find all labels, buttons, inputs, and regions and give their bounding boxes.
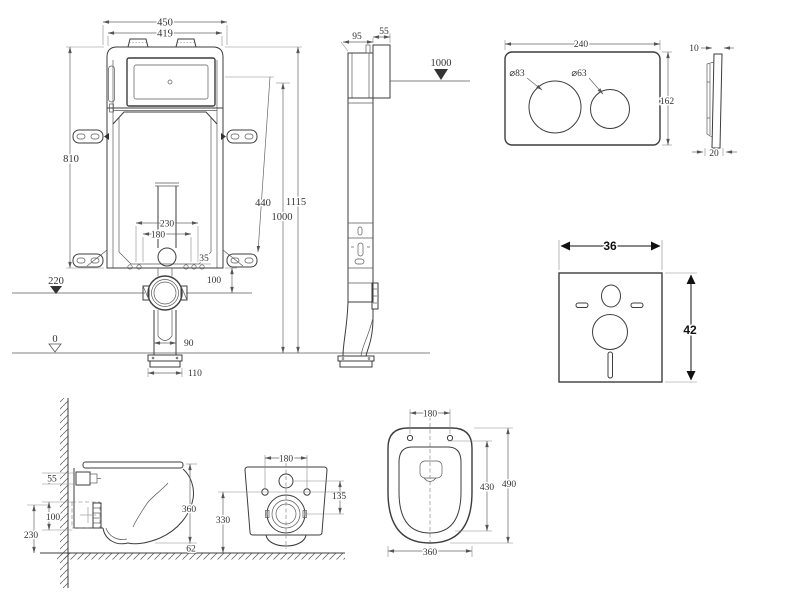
sound-insulation-mat: 36 42 [559,239,697,382]
dim-bolt-spacing-230: 230 [160,220,175,230]
dim-pipe-90: 90 [184,339,194,349]
technical-drawing: 450 419 810 440 1115 1000 230 180 35 100 [0,0,800,600]
dim-frame-overall-width: 450 [157,18,173,29]
outlet-ring-outer [267,495,305,533]
dim-frame-height: 810 [63,154,79,165]
dim-depth-95: 95 [352,32,362,42]
level-220: 220 [48,276,64,287]
bowl-back-view: 180 135 330 [216,455,347,554]
bowl-top-view: 180 430 490 360 [388,409,516,558]
dim-bolt-spacing-180: 180 [151,231,166,241]
bowl-side-view: 55 100 230 360 62 [24,462,197,555]
dim-frame-width: 419 [157,29,173,40]
seat-hole-left [407,435,412,440]
mat-slot-right [631,303,643,308]
dim-dia-large: ⌀83 [509,69,524,79]
level-1000: 1000 [431,58,452,69]
wall-section-hatch [373,45,390,98]
mat-drain-hole [593,315,628,350]
dim-dia-small: ⌀63 [571,69,586,79]
mat-bottom-slot [608,352,613,378]
dim-back-135: 135 [332,492,347,502]
dim-top-360: 360 [423,548,438,558]
floor-hatch [57,554,345,560]
frame-side-view: 95 55 1000 [338,27,470,367]
mat-top-hole [602,285,621,307]
flush-button-small [591,90,630,129]
wall-bracket-upper-left [73,130,109,143]
dim-top-490: 490 [502,480,517,490]
dim-plate-height: 162 [660,97,675,107]
seat-hole-right [447,435,452,440]
dim-100: 100 [207,276,222,286]
flush-plate-side-view: 10 20 [689,44,737,159]
flush-opening [420,461,442,478]
dim-440: 440 [255,198,271,209]
wall-bracket-upper-right [221,130,257,143]
dim-bowl-230: 230 [24,531,39,541]
dim-top-430: 430 [480,483,495,493]
dim-depth-55: 55 [379,27,389,37]
dim-1000: 1000 [272,212,293,223]
dim-bowl-55: 55 [47,475,57,485]
dim-bowl-62: 62 [186,545,196,555]
drain-outlet [143,268,187,367]
frame-front-view: 450 419 810 440 1115 1000 230 180 35 100 [12,18,430,380]
wall-and-floor [40,398,345,588]
dim-1115: 1115 [286,197,306,208]
dim-plate-thickness-bottom: 20 [709,149,719,159]
dim-35: 35 [199,254,209,264]
flush-plate-front-view: 240 162 ⌀83 ⌀63 [505,40,674,145]
flush-button-large [529,81,581,133]
dim-mat-width: 36 [603,239,617,253]
dim-plate-width: 240 [574,40,589,50]
dim-bowl-100: 100 [46,513,61,523]
dim-back-180: 180 [279,455,294,465]
drawing-canvas: 450 419 810 440 1115 1000 230 180 35 100 [0,0,800,600]
dim-plate-thickness-top: 10 [689,44,699,54]
mat-slot-left [576,303,588,308]
dim-base-110: 110 [188,369,202,379]
level-0: 0 [52,334,57,345]
dim-mat-height: 42 [683,323,697,337]
seat-lid [83,462,183,468]
dim-back-330: 330 [216,516,231,526]
dim-bowl-360: 360 [182,505,197,515]
dim-top-180: 180 [423,410,438,420]
